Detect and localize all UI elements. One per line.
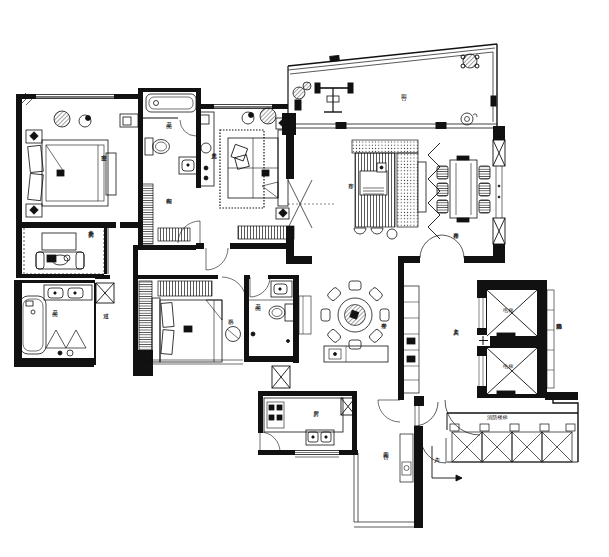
stair-treads [452,432,572,462]
sofa [36,252,84,269]
label-west-dining: 西餐厅 [453,228,459,229]
side-table [120,114,138,127]
stools [354,228,397,239]
elevator-duct [547,290,554,388]
stair-posts [450,424,575,431]
label-bathroom-small: 卫生间 [255,300,261,301]
fire-stairs [421,398,578,481]
dining-chairs [437,166,490,213]
label-round-dining: 中餐厅 [381,318,387,319]
bed [228,130,288,206]
armchair [226,327,241,342]
wardrobe-tall [139,281,152,361]
closet-doors [46,330,86,348]
label-fire-elevator-hall: 消防电梯 [556,318,562,320]
door-arc [250,277,270,297]
double-entry-door [420,235,464,258]
master-bedroom [26,111,138,217]
label-fire-stairs: 消防楼梯 [487,415,508,420]
second-bedroom [139,277,246,362]
door-arc [260,432,280,452]
label-balcony: 阳台 [401,90,407,91]
balcony [288,44,497,129]
bathroom-master [20,285,92,356]
washing-machine [400,434,413,482]
bench [106,153,116,195]
bathroom-small [250,277,311,343]
service-balcony [354,398,419,527]
nightstand [276,208,289,219]
cup-icon [79,115,91,127]
shoe-cabinet [403,286,419,393]
bathtub [146,94,196,112]
table [42,233,76,250]
console [418,162,426,212]
counter [264,398,343,432]
door-arc [421,438,446,463]
nightstand [26,204,42,217]
door-arc [180,120,196,136]
sideboard [324,346,388,362]
gym-bench-icon [315,83,353,112]
stove [267,402,284,428]
label-living-room: 客厅 [348,178,354,179]
living-room [288,140,440,239]
kitchen [260,398,343,452]
label-kitchen: 厨房 [313,406,319,407]
label-elevator-1: 电梯 [503,308,513,313]
rug [220,130,264,208]
bathtub [20,296,46,354]
label-bathroom-master: 卫生间 [52,306,58,307]
label-entry: 入户 [434,452,440,453]
label-master-bedroom: 主卧室 [101,150,107,151]
plant-icon [260,108,276,124]
sink [179,157,198,174]
label-foyer: 入户玄关 [453,324,459,326]
partitions [95,118,293,365]
label-cloakroom: 衣帽间 [166,193,172,194]
floor-plan-page: 主卧室 多功能房 卫生间 衣帽间 儿童房 阳台 客厅 西餐厅 中餐厅 入户玄关 … [0,0,609,557]
label-kids-bedroom: 儿童房 [211,148,217,149]
label-bathroom-top: 卫生间 [166,118,172,119]
sofa-top [352,140,418,153]
sink [271,281,292,297]
door-arc [222,277,246,301]
wardrobe [238,226,294,239]
headboard [152,298,160,362]
toilet [269,304,294,321]
door-arc [206,248,228,270]
bed [28,140,108,206]
label-multifunction-room: 多功能房 [88,226,94,228]
label-elevator-2: 电梯 [503,364,513,369]
west-dining [437,156,490,222]
plant-icon [54,111,70,127]
plant-icon [461,54,479,68]
toilet [145,138,170,155]
plant-icon [293,82,311,110]
cup-icon [242,112,254,124]
floor-plan-drawing [0,0,609,557]
pot-icon [461,113,477,125]
bathroom-top [143,94,198,174]
door-arc [378,400,400,422]
multifunction-room [24,226,104,274]
ac-ledge [299,296,311,334]
label-service-balcony: 工作阳台 [383,448,389,450]
label-hallway: 过道 [103,308,109,309]
nightstand [26,130,42,143]
label-second-bedroom: 次卧 [228,314,234,315]
vanity [44,285,92,300]
round-dining [321,281,389,362]
bed [152,298,222,362]
sofa-right [397,153,418,227]
wardrobe-top [158,281,212,296]
